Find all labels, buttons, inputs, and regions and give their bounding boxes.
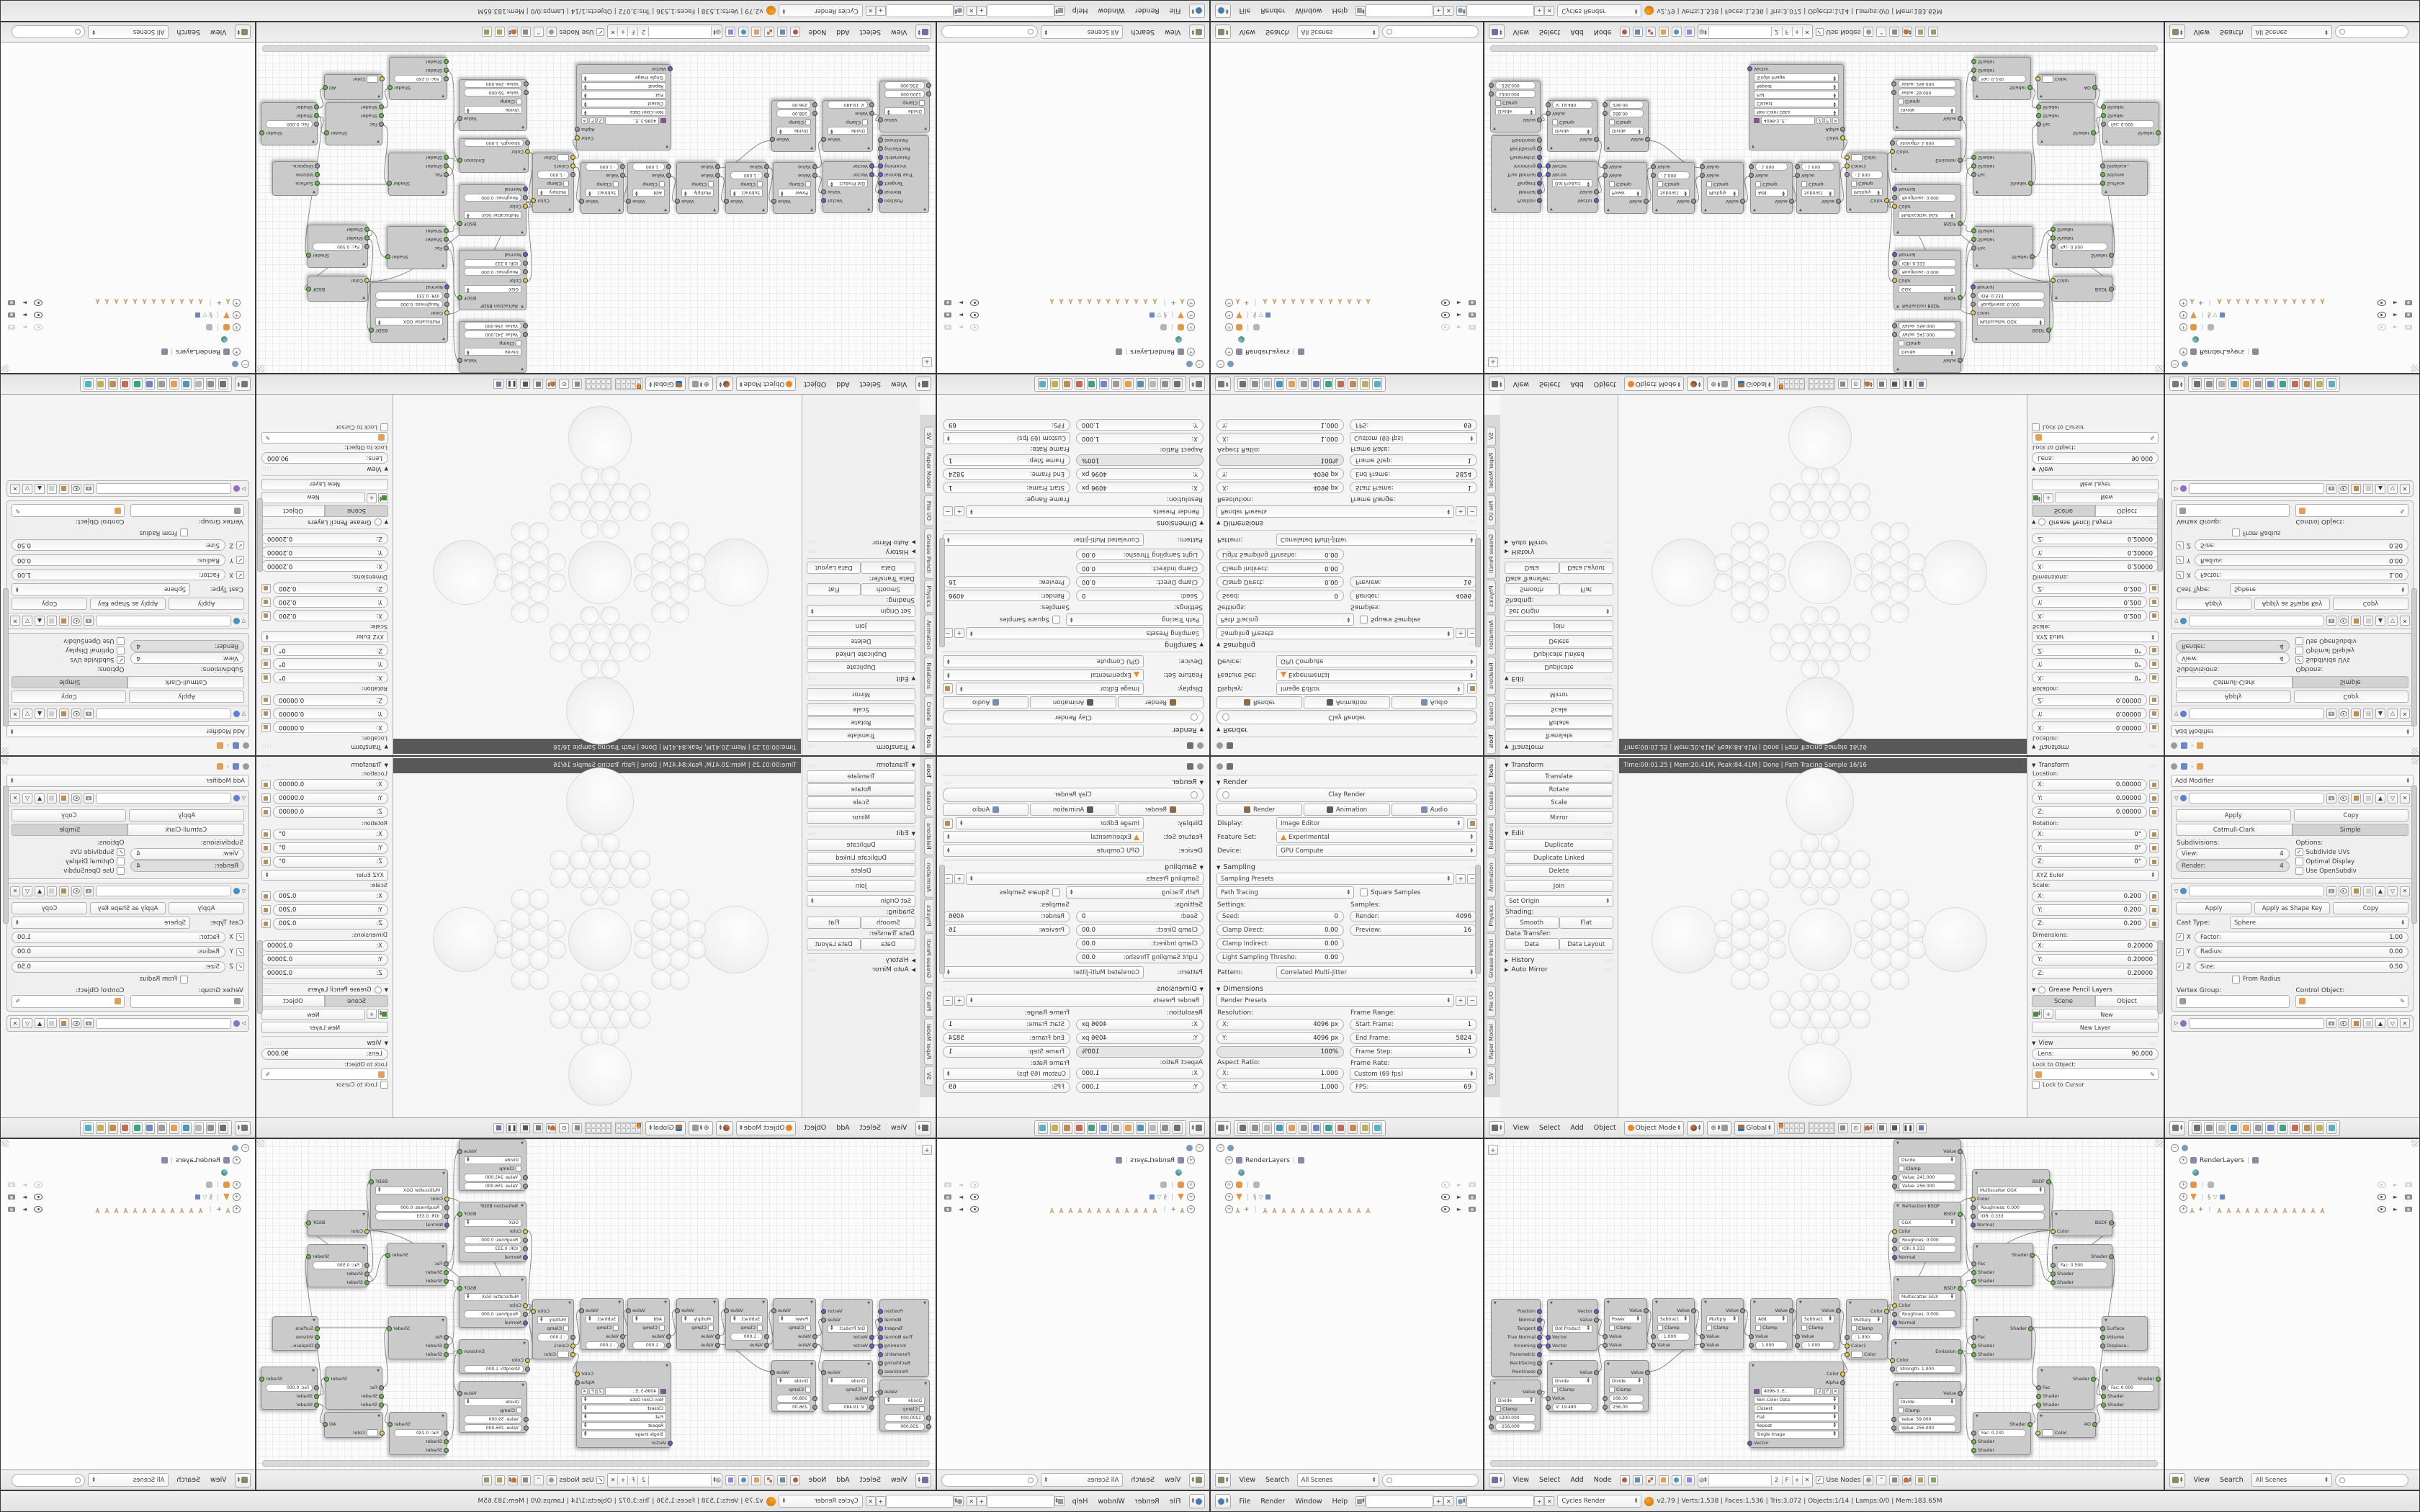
screen-layout-icon-button[interactable]: ▲▼ [1054,1496,1065,1506]
field-seed[interactable]: Seed:0 [1216,590,1344,602]
modifier-render-toggle[interactable] [2326,709,2336,719]
editor-type-button[interactable]: ▲▼ [915,377,931,392]
node-value-168-00[interactable]: 168.00 [1609,110,1644,118]
menu-select[interactable]: Select [1534,380,1565,388]
layer-dot[interactable] [586,1128,591,1133]
layer-dot[interactable] [1794,1123,1798,1128]
tab-object[interactable] [1124,1122,1134,1134]
tab-scene[interactable] [1148,379,1158,390]
delete-scene-button[interactable]: ✕ [866,1496,876,1506]
area-resize-handle[interactable] [2411,747,2419,755]
tab-object[interactable] [1286,1122,1296,1134]
socket-in[interactable] [869,172,874,177]
socket-out[interactable] [2027,85,2033,90]
field-end-frame[interactable]: End Frame:5824 [943,1032,1070,1044]
color-swatch[interactable] [2042,1429,2053,1436]
field-y[interactable]: Y:4096 px [1216,1032,1344,1044]
axis-x-checkbox[interactable]: ✓X [228,932,244,942]
field-z[interactable]: Z:0.20000 [2032,968,2159,979]
layer-dot[interactable] [1784,1123,1788,1128]
delete-screen-button[interactable]: ✕ [967,6,977,16]
new-material-button[interactable]: + [618,27,628,37]
node-checkbox[interactable] [516,1166,521,1171]
socket-in[interactable] [523,186,528,192]
panel-collapse-icon[interactable]: ▼ [1200,780,1204,786]
scrollbar[interactable] [1475,865,1481,974]
socket-in[interactable] [2035,76,2040,81]
node-collapse-icon[interactable]: ▼ [867,145,870,150]
node-collapse-icon[interactable]: ▼ [1655,1300,1658,1305]
pin-icon[interactable] [243,743,249,750]
socket-out[interactable] [821,1370,826,1375]
socket-in[interactable] [1971,1352,1976,1357]
layer-dot[interactable] [1784,379,1788,384]
socket-in[interactable] [1892,269,1897,274]
horizontal-scrollbar[interactable] [1490,45,2158,52]
node-5[interactable]: ▼ValueAdd▲▼ClampValue: 1.000 [627,1298,670,1350]
modifier-view-toggle[interactable] [71,709,81,719]
socket-in[interactable] [444,1270,449,1275]
node-select-closest[interactable]: Closest▲▼ [581,100,666,108]
area-resize-handle[interactable] [2411,365,2419,372]
panel-title-dimensions[interactable]: Dimensions [1157,519,1196,527]
node-value-fac-0-230[interactable]: Fac: 0.230 [1978,1429,2026,1437]
node-value-ior-0-333[interactable]: IOR: 0.333 [1899,1245,1956,1253]
expand-icon[interactable]: + [2179,311,2187,319]
node-collapse-icon[interactable]: ▼ [313,189,315,194]
node-checkbox[interactable] [805,1325,811,1331]
socket-in[interactable] [1749,1334,1754,1339]
mirror-button[interactable]: Mirror [807,688,915,701]
menu-select[interactable]: Select [1534,28,1565,36]
lock-icon-button[interactable] [261,598,271,607]
node-select-subtract[interactable]: Subtract▲▼ [586,1315,619,1323]
node-value-value-59-000[interactable]: Value: 59.000 [1898,89,1956,97]
render-animation-button[interactable]: Animation [1304,696,1389,708]
tree-type-compositing-button[interactable] [1633,1475,1643,1485]
node-collapse-icon[interactable]: ▼ [1976,1245,1978,1249]
node-checkbox[interactable] [516,99,522,104]
tab-physics[interactable] [84,1122,94,1134]
socket-in[interactable] [1891,81,1896,86]
socket-in[interactable] [1795,1343,1800,1348]
menu-search[interactable]: Search [1260,1476,1294,1484]
socket-in[interactable] [2036,104,2041,109]
socket-in[interactable] [524,90,529,95]
scrollbar[interactable] [257,498,263,572]
modifier-down-button[interactable]: ▽ [2388,1018,2398,1028]
socket-in[interactable] [525,149,530,154]
modifier-cage-toggle[interactable] [47,886,57,896]
field-x[interactable]: X:0.200 [273,611,388,622]
screen-cast-button[interactable] [493,379,503,390]
node-select-multiscatter-ggx[interactable]: Multiscatter GGX▲▼ [1899,1293,1956,1301]
node-12[interactable]: ▼ValueDivide▲▼ClampValue: 241.000Value: … [1894,1139,1961,1191]
orientation-select[interactable]: Global▲▼ [1734,1121,1774,1135]
scene-name-field[interactable] [1466,1495,1534,1508]
menu-select[interactable]: Select [1534,1124,1565,1132]
field-frame-step[interactable]: Frame Step:1 [1350,1046,1477,1058]
shelf-tab-tools[interactable]: Tools [1487,728,1496,754]
tab-material[interactable] [120,1122,130,1134]
socket-in[interactable] [1892,1312,1897,1317]
shelf-tab-grease-pencil[interactable]: Grease Pencil [924,933,933,984]
clay-render-radio[interactable] [1222,791,1229,798]
layer-dot[interactable] [1824,384,1829,389]
shelf-tab-animation[interactable]: Animation [924,857,933,898]
socket-in[interactable] [1892,1320,1897,1326]
preset-add-button[interactable]: + [1456,874,1466,884]
node-checkbox[interactable] [708,181,714,187]
shelf-tab-paper-model[interactable]: Paper Model [924,447,933,494]
menu-object[interactable]: Object [1589,1124,1621,1132]
socket-in[interactable] [1971,1214,1976,1219]
menu-add[interactable]: Add [1565,1476,1588,1484]
lock-object-field[interactable]: ✎ [261,1068,388,1080]
selectability-toggle[interactable]: ► [959,1182,963,1188]
layer-dot[interactable] [586,379,591,384]
npanel-open-button[interactable]: + [922,357,932,367]
layer-dot[interactable] [632,379,636,384]
editor-type-button[interactable]: ▲▼ [235,1121,251,1135]
field-clamp-direct[interactable]: Clamp Direct:0.00 [1216,577,1344,588]
modifier-down-button[interactable]: ▽ [22,616,32,626]
modifier-name-field[interactable] [2189,886,2324,896]
node-collapse-icon[interactable]: ▼ [810,1362,813,1367]
socket-in[interactable] [444,246,449,251]
layer-group-1[interactable] [585,1122,612,1134]
axis-z-checkbox[interactable]: ✓Z [2176,541,2192,550]
node-checkbox[interactable] [659,1325,665,1331]
editor-type-button[interactable]: ▲▼ [2169,377,2185,392]
node-collapse-icon[interactable]: ▼ [2040,139,2043,143]
node-select-multiply[interactable]: Multiply▲▼ [681,1315,714,1323]
socket-in[interactable] [523,269,528,274]
tab-world[interactable] [181,379,192,390]
socket-out[interactable] [2028,1326,2033,1331]
socket-out[interactable] [2030,254,2035,259]
node-value-roughnes-0-000[interactable]: Roughnes: 0.000 [1899,1310,1956,1318]
node-collapse-icon[interactable]: ▼ [1894,1341,1897,1346]
modifier-name-field[interactable] [96,708,231,719]
tab-render-layers[interactable] [1250,379,1260,390]
node-value-fac-0-230[interactable]: Fac: 0.230 [394,76,442,84]
layer-group-0[interactable] [615,1122,642,1134]
expand-icon[interactable]: + [1225,299,1233,307]
field-z[interactable]: Z:0.200 [2032,583,2147,595]
modifier-apply-button[interactable]: Apply [130,809,245,822]
socket-in[interactable] [570,1344,575,1349]
node-3[interactable]: ▼ValueSubtract▲▼Clamp: 1.000Value [1652,162,1695,214]
field-size[interactable]: Size:0.50 [2195,540,2408,552]
scrollbar[interactable] [3,786,9,924]
socket-in[interactable] [2051,235,2056,240]
modifier-render-toggle[interactable] [84,709,94,719]
add-scene-button[interactable]: + [1534,1496,1544,1506]
tab-data[interactable] [1323,1122,1333,1134]
node-select-subtract[interactable]: Subtract▲▼ [1801,189,1834,197]
square-samples-checkbox[interactable]: Square Samples [1360,615,1477,624]
node-select-multiscatter-ggx[interactable]: Multiscatter GGX▲▼ [375,318,443,326]
socket-in[interactable] [523,1184,528,1189]
node-collapse-icon[interactable]: ▼ [362,1212,365,1217]
field-y[interactable]: Y:0.00000 [2032,708,2147,720]
modifier-render-toggle[interactable] [2326,793,2336,804]
node-collapse-icon[interactable]: ▼ [377,139,380,143]
tab-scene[interactable] [194,1122,204,1134]
layers-widget[interactable] [1778,378,1835,390]
vertex-group-field[interactable] [131,505,245,518]
menu-object[interactable]: Object [799,1124,831,1132]
node-select-divide[interactable]: Divide▲▼ [1609,1377,1644,1385]
pin-icon[interactable] [2171,763,2177,770]
visibility-toggle[interactable] [2378,1206,2386,1212]
socket-in[interactable] [2051,278,2056,283]
socket-in[interactable] [1700,1343,1705,1348]
field-x[interactable]: X:0.20000 [261,561,388,572]
field-seed[interactable]: Seed:0 [1216,911,1344,922]
modifier-delete-button[interactable]: ✕ [10,793,20,804]
render-border-button[interactable] [572,1123,582,1133]
modifier-copy-button[interactable]: Copy [12,809,127,822]
expand-icon[interactable]: + [1225,1181,1233,1189]
npanel-transform-title[interactable]: Transform [2038,743,2069,750]
socket-in[interactable] [364,278,369,283]
socket-out[interactable] [1958,1391,1963,1396]
visibility-toggle[interactable] [1441,1206,1450,1212]
modifier-name-field[interactable] [96,793,231,804]
lock-icon-button[interactable] [2149,793,2159,803]
node-select-divide[interactable]: Divide▲▼ [1898,107,1956,114]
preset-add-button[interactable]: + [954,507,964,517]
node-value-256-000[interactable]: : 256.000 [1495,1423,1536,1431]
node-select-single-image[interactable]: Single Image▲▼ [581,74,666,82]
socket-in[interactable] [715,164,720,169]
layer-group-0[interactable] [615,378,642,390]
shader-type-object-button[interactable] [1659,1475,1669,1485]
panel-title-sampling[interactable]: Sampling [1165,863,1196,871]
tree-type-texture-button[interactable] [1646,1475,1656,1485]
scene-icon-button[interactable]: ▲▼ [1456,6,1466,16]
object-tab[interactable]: Object [261,505,325,517]
socket-out[interactable] [306,287,311,292]
socket-in[interactable] [2100,1335,2105,1340]
menu-object[interactable]: Object [1589,380,1621,388]
node-value-strength-1-000[interactable]: Strength: 1.000 [1896,140,1956,148]
selectability-toggle[interactable]: ► [959,324,963,330]
socket-out[interactable] [1840,1380,1845,1385]
socket-in[interactable] [364,235,369,240]
socket-in[interactable] [764,1343,769,1348]
layer-dot[interactable] [1799,384,1803,389]
field-z[interactable]: Z:0° [2032,645,2147,657]
field-x[interactable]: X:0° [273,672,388,684]
node-select-multiply[interactable]: Multiply▲▼ [1851,189,1883,197]
node-10[interactable]: ▼ValueDivide▲▼Clamp168.00256.00 [1604,100,1649,152]
modifier-copy-button[interactable]: Copy [2294,809,2409,822]
scene-name-field[interactable] [1466,4,1534,17]
render-layers-label[interactable]: RenderLayers [2200,1157,2244,1164]
snap-node-button[interactable] [521,27,531,37]
material-name-field[interactable] [648,27,712,37]
node-checkbox[interactable] [805,120,811,125]
translate-button[interactable]: Translate [1505,770,1613,783]
tree-type-compositing-button[interactable] [1633,27,1643,37]
editor-type-button[interactable]: ▲▼ [1189,4,1205,18]
field-radius[interactable]: Radius:0.00 [2195,946,2408,958]
tab-data[interactable] [1323,379,1333,390]
node-collapse-icon[interactable]: ▼ [1894,166,1897,171]
lock-icon-button[interactable] [2149,843,2159,852]
field-z[interactable]: Z:0.200 [273,918,388,930]
modifier-render-toggle[interactable] [2326,886,2336,896]
lock-icon-button[interactable] [261,919,271,928]
modifier-apply-button[interactable]: Apply [2176,690,2291,703]
socket-in[interactable] [444,1335,449,1340]
flat-button[interactable]: Flat [807,583,861,595]
socket-in[interactable] [1749,164,1754,169]
layer-dot[interactable] [632,1123,636,1128]
node-collapse-icon[interactable]: ▼ [377,94,380,98]
lock-icon-button[interactable] [2149,780,2159,789]
add-screen-button[interactable]: + [977,1496,987,1506]
tab-modifiers[interactable] [1099,1122,1109,1134]
field-y[interactable]: Y:4096 px [1076,469,1204,480]
node-collapse-icon[interactable]: ▼ [713,1300,716,1305]
socket-in[interactable] [715,1343,720,1348]
node-select-divide[interactable]: Divide▲▼ [884,108,925,116]
lock-icon-button[interactable] [2149,584,2159,593]
node-collapse-icon[interactable]: ▼ [521,1278,524,1282]
socket-in[interactable] [1747,66,1752,71]
visibility-toggle[interactable] [970,1194,979,1200]
modifier-up-button[interactable]: ▲ [35,484,45,494]
socket-in[interactable] [1749,173,1754,178]
node-24[interactable]: ▼ShaderFac: 0.000ShaderShader [261,102,318,145]
modifier-down-button[interactable]: ▽ [2388,709,2398,719]
tab-data[interactable] [2277,379,2287,390]
delete-scene-button[interactable]: ✕ [1544,6,1554,16]
menu-search[interactable]: Search [1260,28,1294,36]
pause-render-button[interactable]: ❚❚ [506,1123,517,1133]
node-collapse-icon[interactable]: ▼ [1896,1141,1899,1146]
tab-constraints[interactable] [2253,379,2263,390]
sampling-presets-select[interactable]: Sampling Presets▲▼ [966,873,1204,885]
clay-render-radio[interactable] [1191,791,1198,798]
pin-node-tree-button[interactable] [1863,1475,1873,1485]
gp-new-button[interactable]: New [261,492,365,503]
frame-rate-select[interactable]: Custom (69 fps)▲▼ [1350,1068,1477,1080]
selectability-toggle[interactable]: ► [22,1194,27,1200]
node-collapse-icon[interactable]: ▼ [442,336,445,341]
translate-button[interactable]: Translate [807,729,915,742]
modifier-name-field[interactable] [96,484,231,495]
tab-physics[interactable] [2326,1122,2336,1134]
node-checkbox[interactable] [757,181,763,187]
modifier-view-toggle[interactable] [71,484,81,494]
node-value-value-256-000[interactable]: Value: 256.000 [1898,81,1956,89]
node-select-divide[interactable]: Divide▲▼ [1552,127,1592,135]
modifier-view-toggle[interactable] [71,886,81,896]
socket-in[interactable] [523,1246,528,1251]
lock-icon-button[interactable] [2149,905,2159,914]
scene-tab[interactable]: Scene [2032,995,2095,1007]
npanel-open-button[interactable]: + [1488,357,1498,367]
gp-layers-title[interactable]: Grease Pencil Layers [308,986,371,994]
node-2[interactable]: ▼ValuePower▲▼ClampValueValue [1604,1298,1647,1350]
layer-group-0[interactable] [1778,1122,1805,1134]
selectability-toggle[interactable]: ► [2393,300,2398,306]
node-collapse-icon[interactable]: ▼ [1550,207,1553,211]
image-users-button[interactable]: 2 [1816,1388,1823,1395]
render-presets-select[interactable]: Render Presets▲▼ [966,505,1204,518]
add-modifier-select[interactable]: Add Modifier▲▼ [2171,725,2414,737]
field-clamp-direct[interactable]: Clamp Direct:0.00 [1076,924,1204,936]
shelf-history-title[interactable]: History [1511,957,1534,964]
socket-in[interactable] [523,195,528,200]
node-collapse-icon[interactable]: ▼ [1704,207,1707,212]
field-factor[interactable]: Factor:1.00 [12,570,225,581]
field-clamp-indirect[interactable]: Clamp Indirect:0.00 [1076,938,1204,950]
node-12[interactable]: ▼ValueDivide▲▼ClampValue: 241.000Value: … [459,321,526,373]
lock-icon-button[interactable] [2149,807,2159,816]
node-2[interactable]: ▼ValuePower▲▼ClampValueValue [773,162,816,214]
vertex-group-field[interactable] [2176,505,2290,518]
add-scene-button[interactable]: + [876,1496,886,1506]
field-preview[interactable]: Preview:16 [1350,924,1477,936]
modifier-apply-button[interactable]: Apply [2176,809,2291,822]
lock-icon-button[interactable] [2149,598,2159,607]
npanel-open-button[interactable]: + [922,1145,932,1155]
shelf-edit-title[interactable]: Edit [1511,675,1523,682]
menu-file[interactable]: File [1165,1498,1186,1506]
pin-node-tree-button[interactable] [547,1475,557,1485]
layer-dot[interactable] [1799,1123,1803,1128]
node-checkbox[interactable] [757,1325,763,1331]
node-20[interactable]: ▼ShaderFac: 0.500ShaderShader [308,225,368,268]
lock-interface-button[interactable] [1467,819,1477,829]
outliner-search-input[interactable] [941,1474,1038,1487]
cast-type-select[interactable]: Sphere▲▼ [2230,583,2408,595]
node-12[interactable]: ▼ValueDivide▲▼ClampValue: 241.000Value: … [1894,321,1961,373]
node-20[interactable]: ▼ShaderFac: 0.500ShaderShader [2052,1244,2112,1287]
mode-select[interactable]: Object Mode▲▼ [1624,377,1684,392]
node-collapse-icon[interactable]: ▼ [568,1301,571,1305]
node-select-dot-product[interactable]: Dot Product▲▼ [1552,180,1592,188]
field-light-sampling-thresho[interactable]: Light Sampling Thresho:0.00 [1076,549,1204,561]
socket-in[interactable] [444,1344,449,1349]
socket-in[interactable] [380,1431,385,1436]
shelf-tab-create[interactable]: Create [924,696,933,727]
render-presets-select[interactable]: Render Presets▲▼ [1216,505,1454,518]
node-collapse-icon[interactable]: ▼ [664,207,667,212]
expand-icon[interactable]: + [233,1156,241,1164]
render-layers-label[interactable]: RenderLayers [176,348,220,356]
copy-button[interactable]: Copy [12,598,87,610]
field-factor[interactable]: Factor:1.00 [2195,932,2408,943]
field-y[interactable]: Y:0° [273,659,388,670]
gp-add-button[interactable]: + [2043,493,2053,503]
image-fake-user-button[interactable]: F [1824,118,1831,125]
panel-title-dimensions[interactable]: Dimensions [1157,985,1196,993]
field-z[interactable]: Z:0° [273,645,388,657]
node-0[interactable]: ▼PositionNormalTangentTrue NormalIncomin… [879,135,929,213]
material-users-button[interactable]: 2 [1772,1475,1782,1485]
expand-icon[interactable]: + [2179,1156,2187,1164]
tab-world[interactable] [2228,379,2238,390]
node-collapse-icon[interactable]: ▼ [1976,1318,1978,1323]
socket-in[interactable] [812,1343,817,1348]
